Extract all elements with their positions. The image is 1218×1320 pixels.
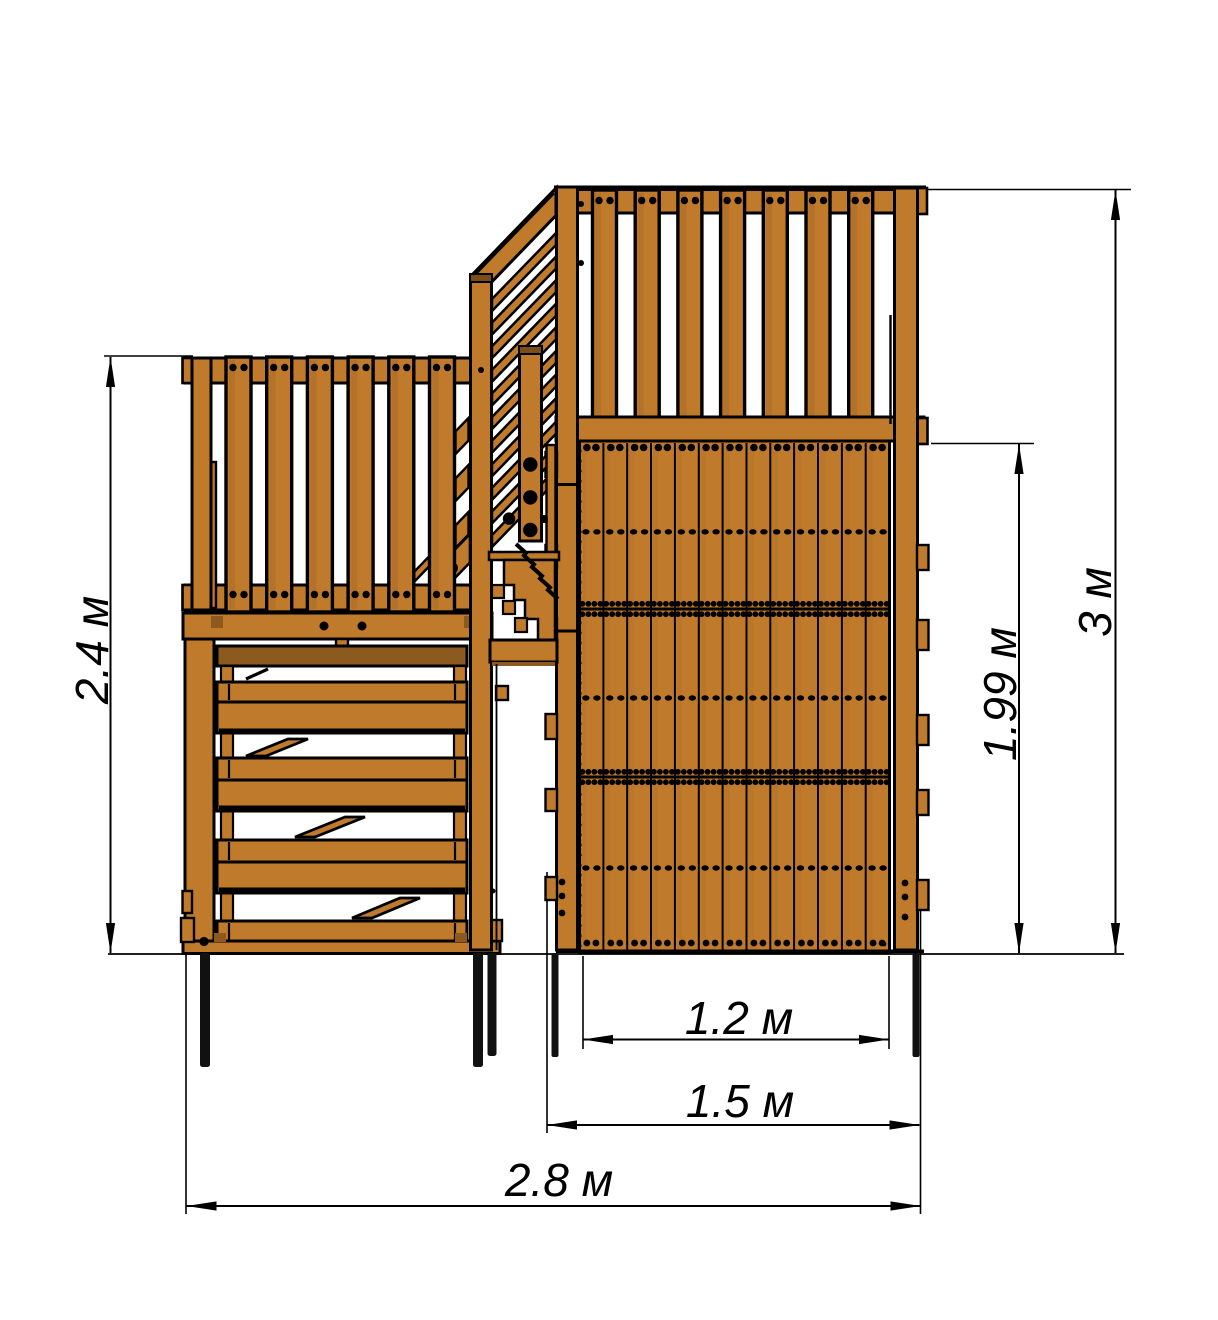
svg-text:2.8 м: 2.8 м — [504, 1154, 613, 1206]
svg-text:3 м: 3 м — [1069, 567, 1121, 637]
svg-text:1.2 м: 1.2 м — [685, 992, 793, 1044]
svg-text:2.4 м: 2.4 м — [66, 596, 118, 705]
svg-text:1.99 м: 1.99 м — [974, 627, 1026, 761]
svg-text:1.5 м: 1.5 м — [686, 1075, 794, 1127]
